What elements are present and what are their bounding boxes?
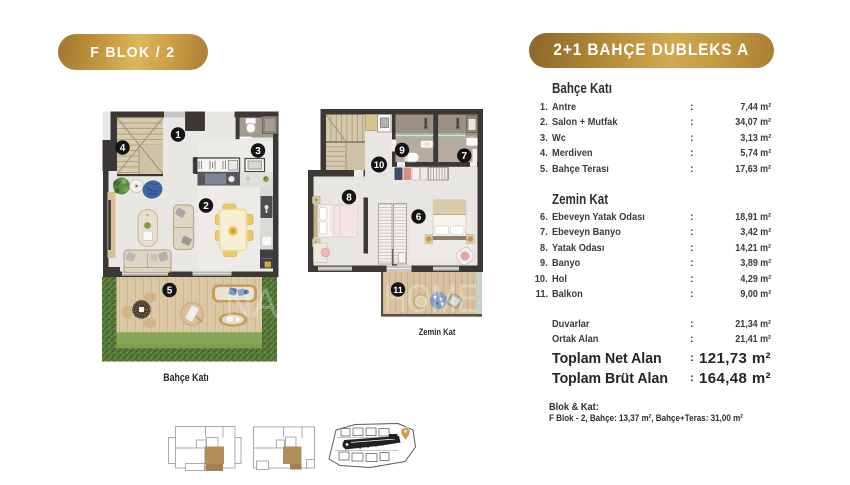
svg-text:8: 8	[346, 193, 352, 204]
